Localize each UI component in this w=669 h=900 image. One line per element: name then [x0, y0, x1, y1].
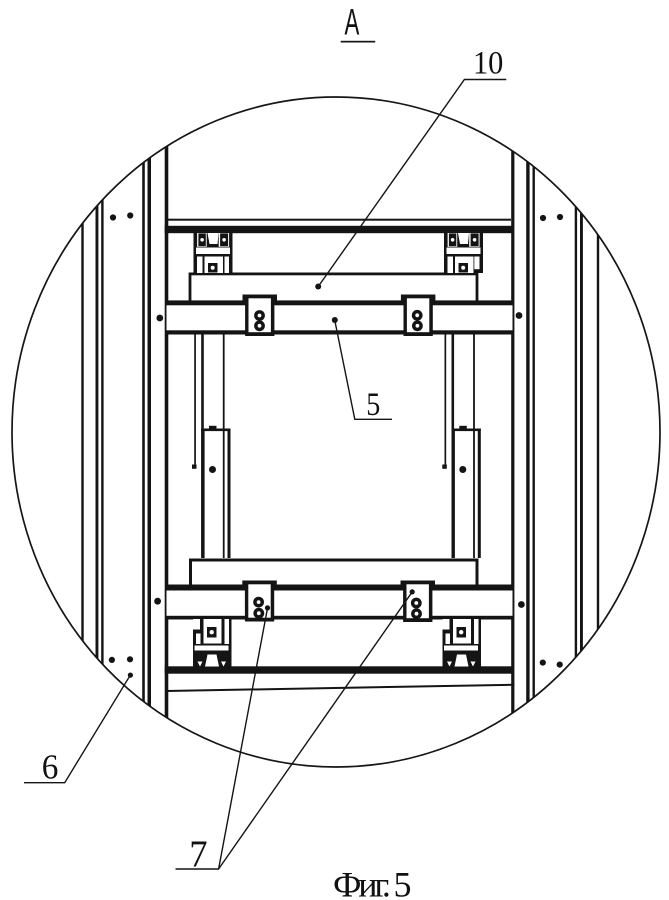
- svg-text:6: 6: [42, 749, 59, 787]
- svg-text:5: 5: [366, 386, 380, 423]
- svg-text:Фиг. 5: Фиг. 5: [333, 865, 412, 900]
- svg-text:10: 10: [473, 45, 503, 81]
- svg-text:A: A: [345, 2, 360, 43]
